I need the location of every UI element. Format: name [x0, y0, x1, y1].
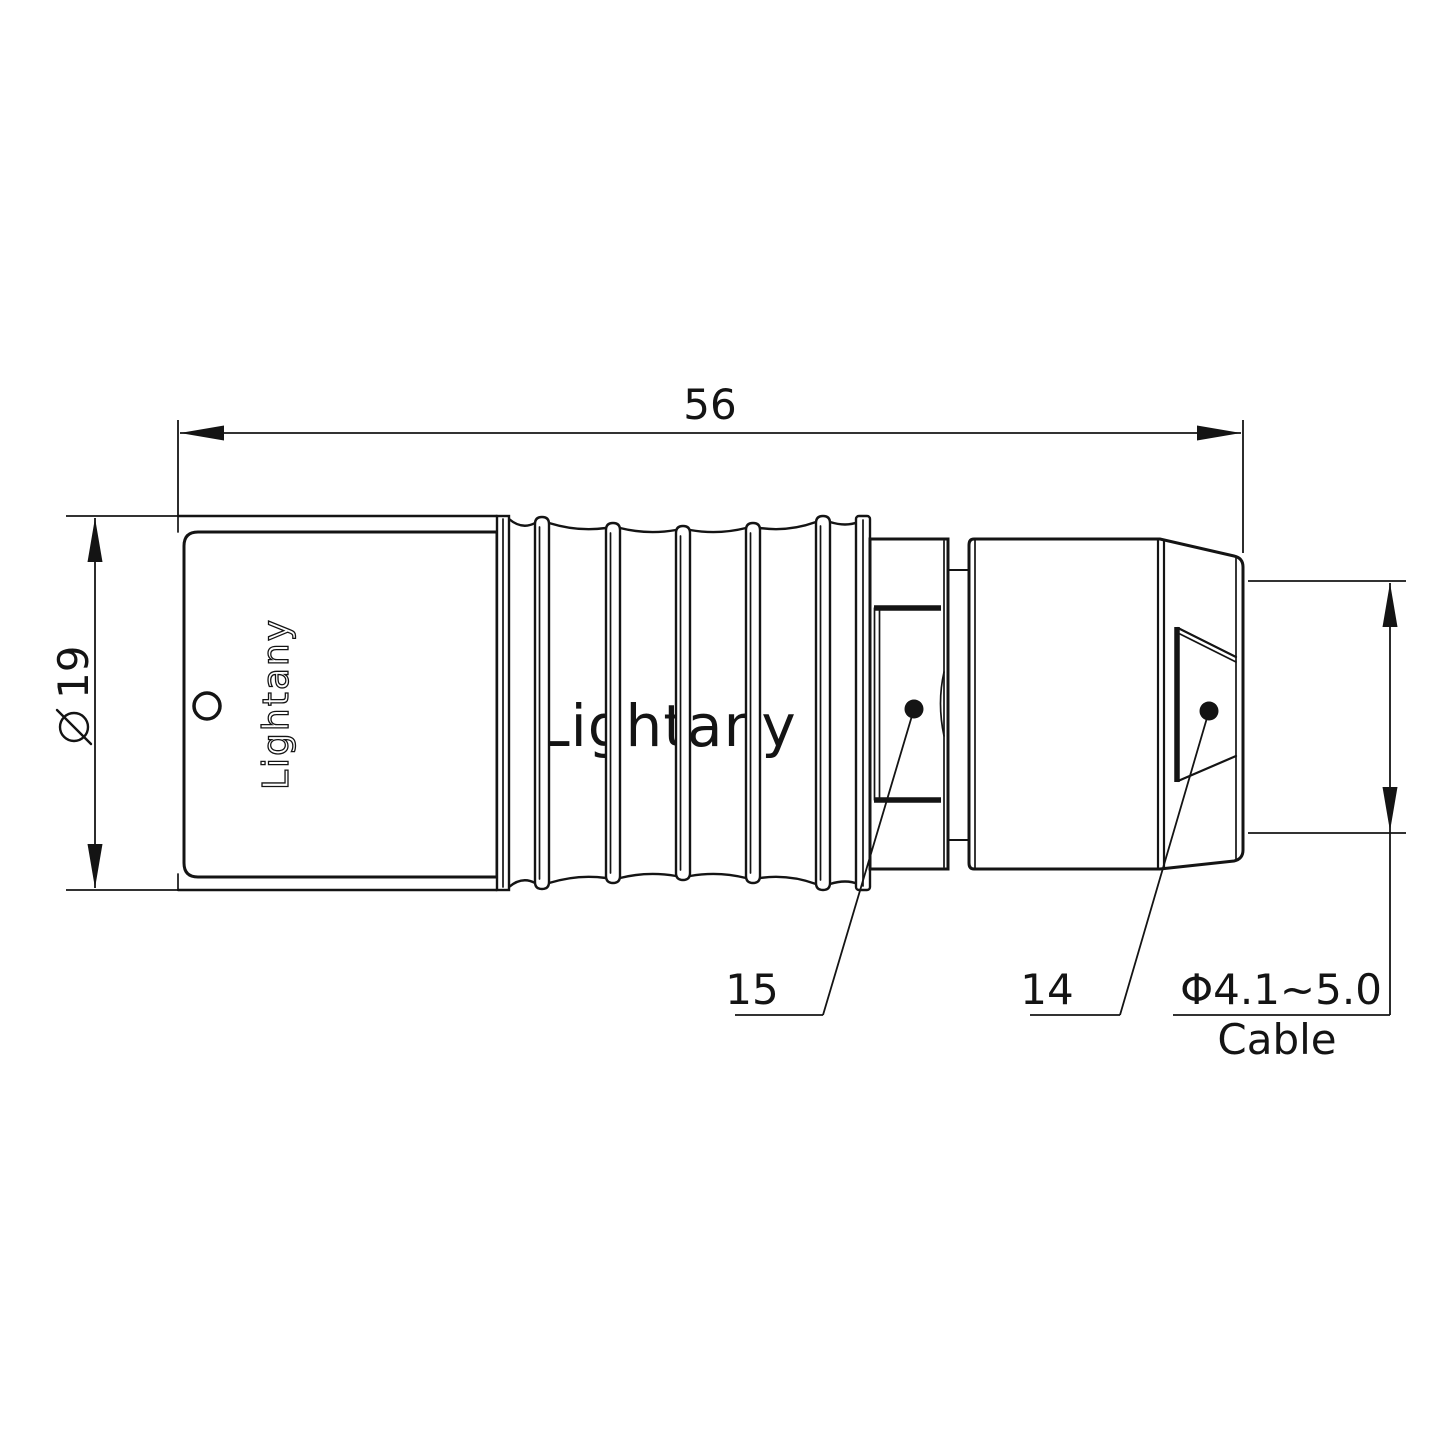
front-sleeve: Lightany [178, 516, 497, 890]
diameter-value: 19 [49, 646, 98, 699]
cable-label: Cable [1217, 1015, 1336, 1064]
sleeve-face-plate [184, 532, 497, 877]
dimension-diameter: 19 [49, 516, 178, 890]
overall-length-value: 56 [683, 380, 736, 429]
grip-rib [606, 523, 620, 883]
grip-rib [816, 516, 830, 890]
grip-rib [676, 526, 690, 880]
arrowhead-down-icon [88, 844, 103, 888]
arrowhead-up-icon [88, 518, 103, 562]
connector-technical-drawing: Lightany Lightany [0, 0, 1440, 1440]
diameter-label: 19 [49, 646, 98, 744]
cable-range-value: Φ4.1~5.0 [1180, 965, 1382, 1014]
part-number-15: 15 [725, 965, 778, 1014]
body-engraving-text: Lightany [256, 618, 297, 790]
part-number-14: 14 [1020, 965, 1073, 1014]
drawing-canvas: Lightany Lightany [0, 0, 1440, 1440]
dimension-overall-length: 56 [178, 380, 1243, 553]
grip-rib [535, 517, 549, 889]
arrowhead-up-icon [1383, 583, 1398, 627]
arrowhead-left-icon [180, 426, 224, 441]
arrowhead-right-icon [1197, 426, 1241, 441]
backshell-outline [969, 539, 1243, 869]
grip-rib [746, 523, 760, 883]
arrowhead-down-icon [1383, 787, 1398, 831]
diameter-symbol-icon [57, 710, 91, 744]
backshell [969, 539, 1243, 869]
